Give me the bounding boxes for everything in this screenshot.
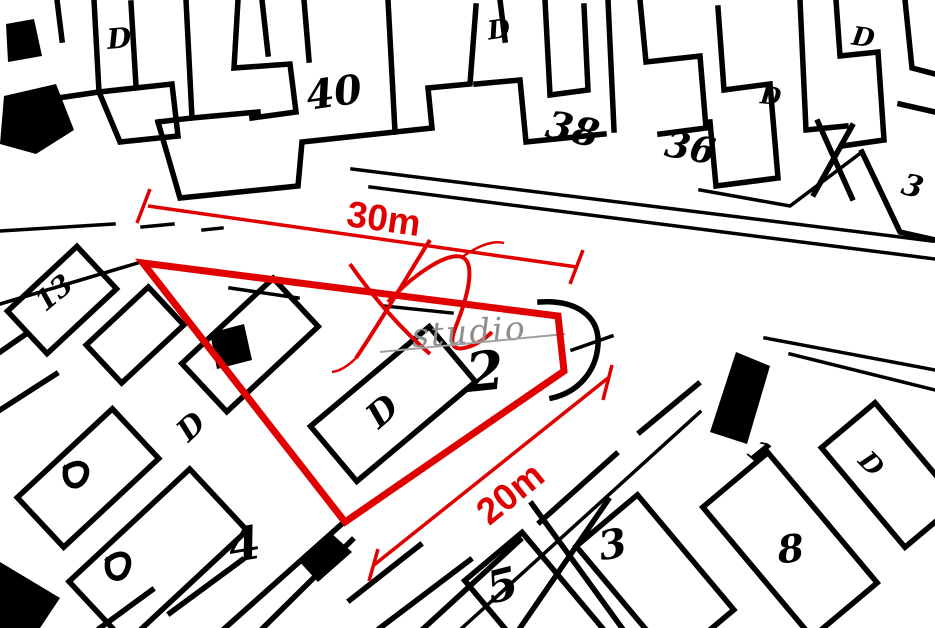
- house-number-40: 40: [303, 65, 365, 119]
- watermark-k-monogram-icon: [332, 358, 356, 372]
- house-number-8: 8: [774, 525, 806, 573]
- letter-d-glyph: D: [105, 21, 134, 56]
- house-number-4: 4: [224, 515, 265, 574]
- cadastral-map-screenshot: 40 38 36 D D D D 3 13 D D 2 4 5 3 8 1 D …: [0, 0, 935, 628]
- cadastral-map-svg: 40 38 36 D D D D 3 13 D D 2 4 5 3 8 1 D …: [0, 0, 935, 628]
- letter-d-glyph: D: [169, 405, 213, 449]
- letter-d-glyph: D: [851, 445, 889, 483]
- house-number-3-top: 3: [898, 167, 927, 206]
- dimension-line-20m: [374, 378, 608, 565]
- house-number-13: 13: [28, 268, 79, 318]
- letter-d-glyph: D: [358, 387, 408, 438]
- letter-d-glyph: D: [485, 14, 513, 47]
- letter-d-glyph: D: [849, 22, 877, 55]
- house-number-3: 3: [595, 519, 631, 570]
- house-number-38: 38: [542, 101, 603, 156]
- house-number-36: 36: [662, 123, 719, 173]
- letter-d-glyph: D: [758, 80, 782, 111]
